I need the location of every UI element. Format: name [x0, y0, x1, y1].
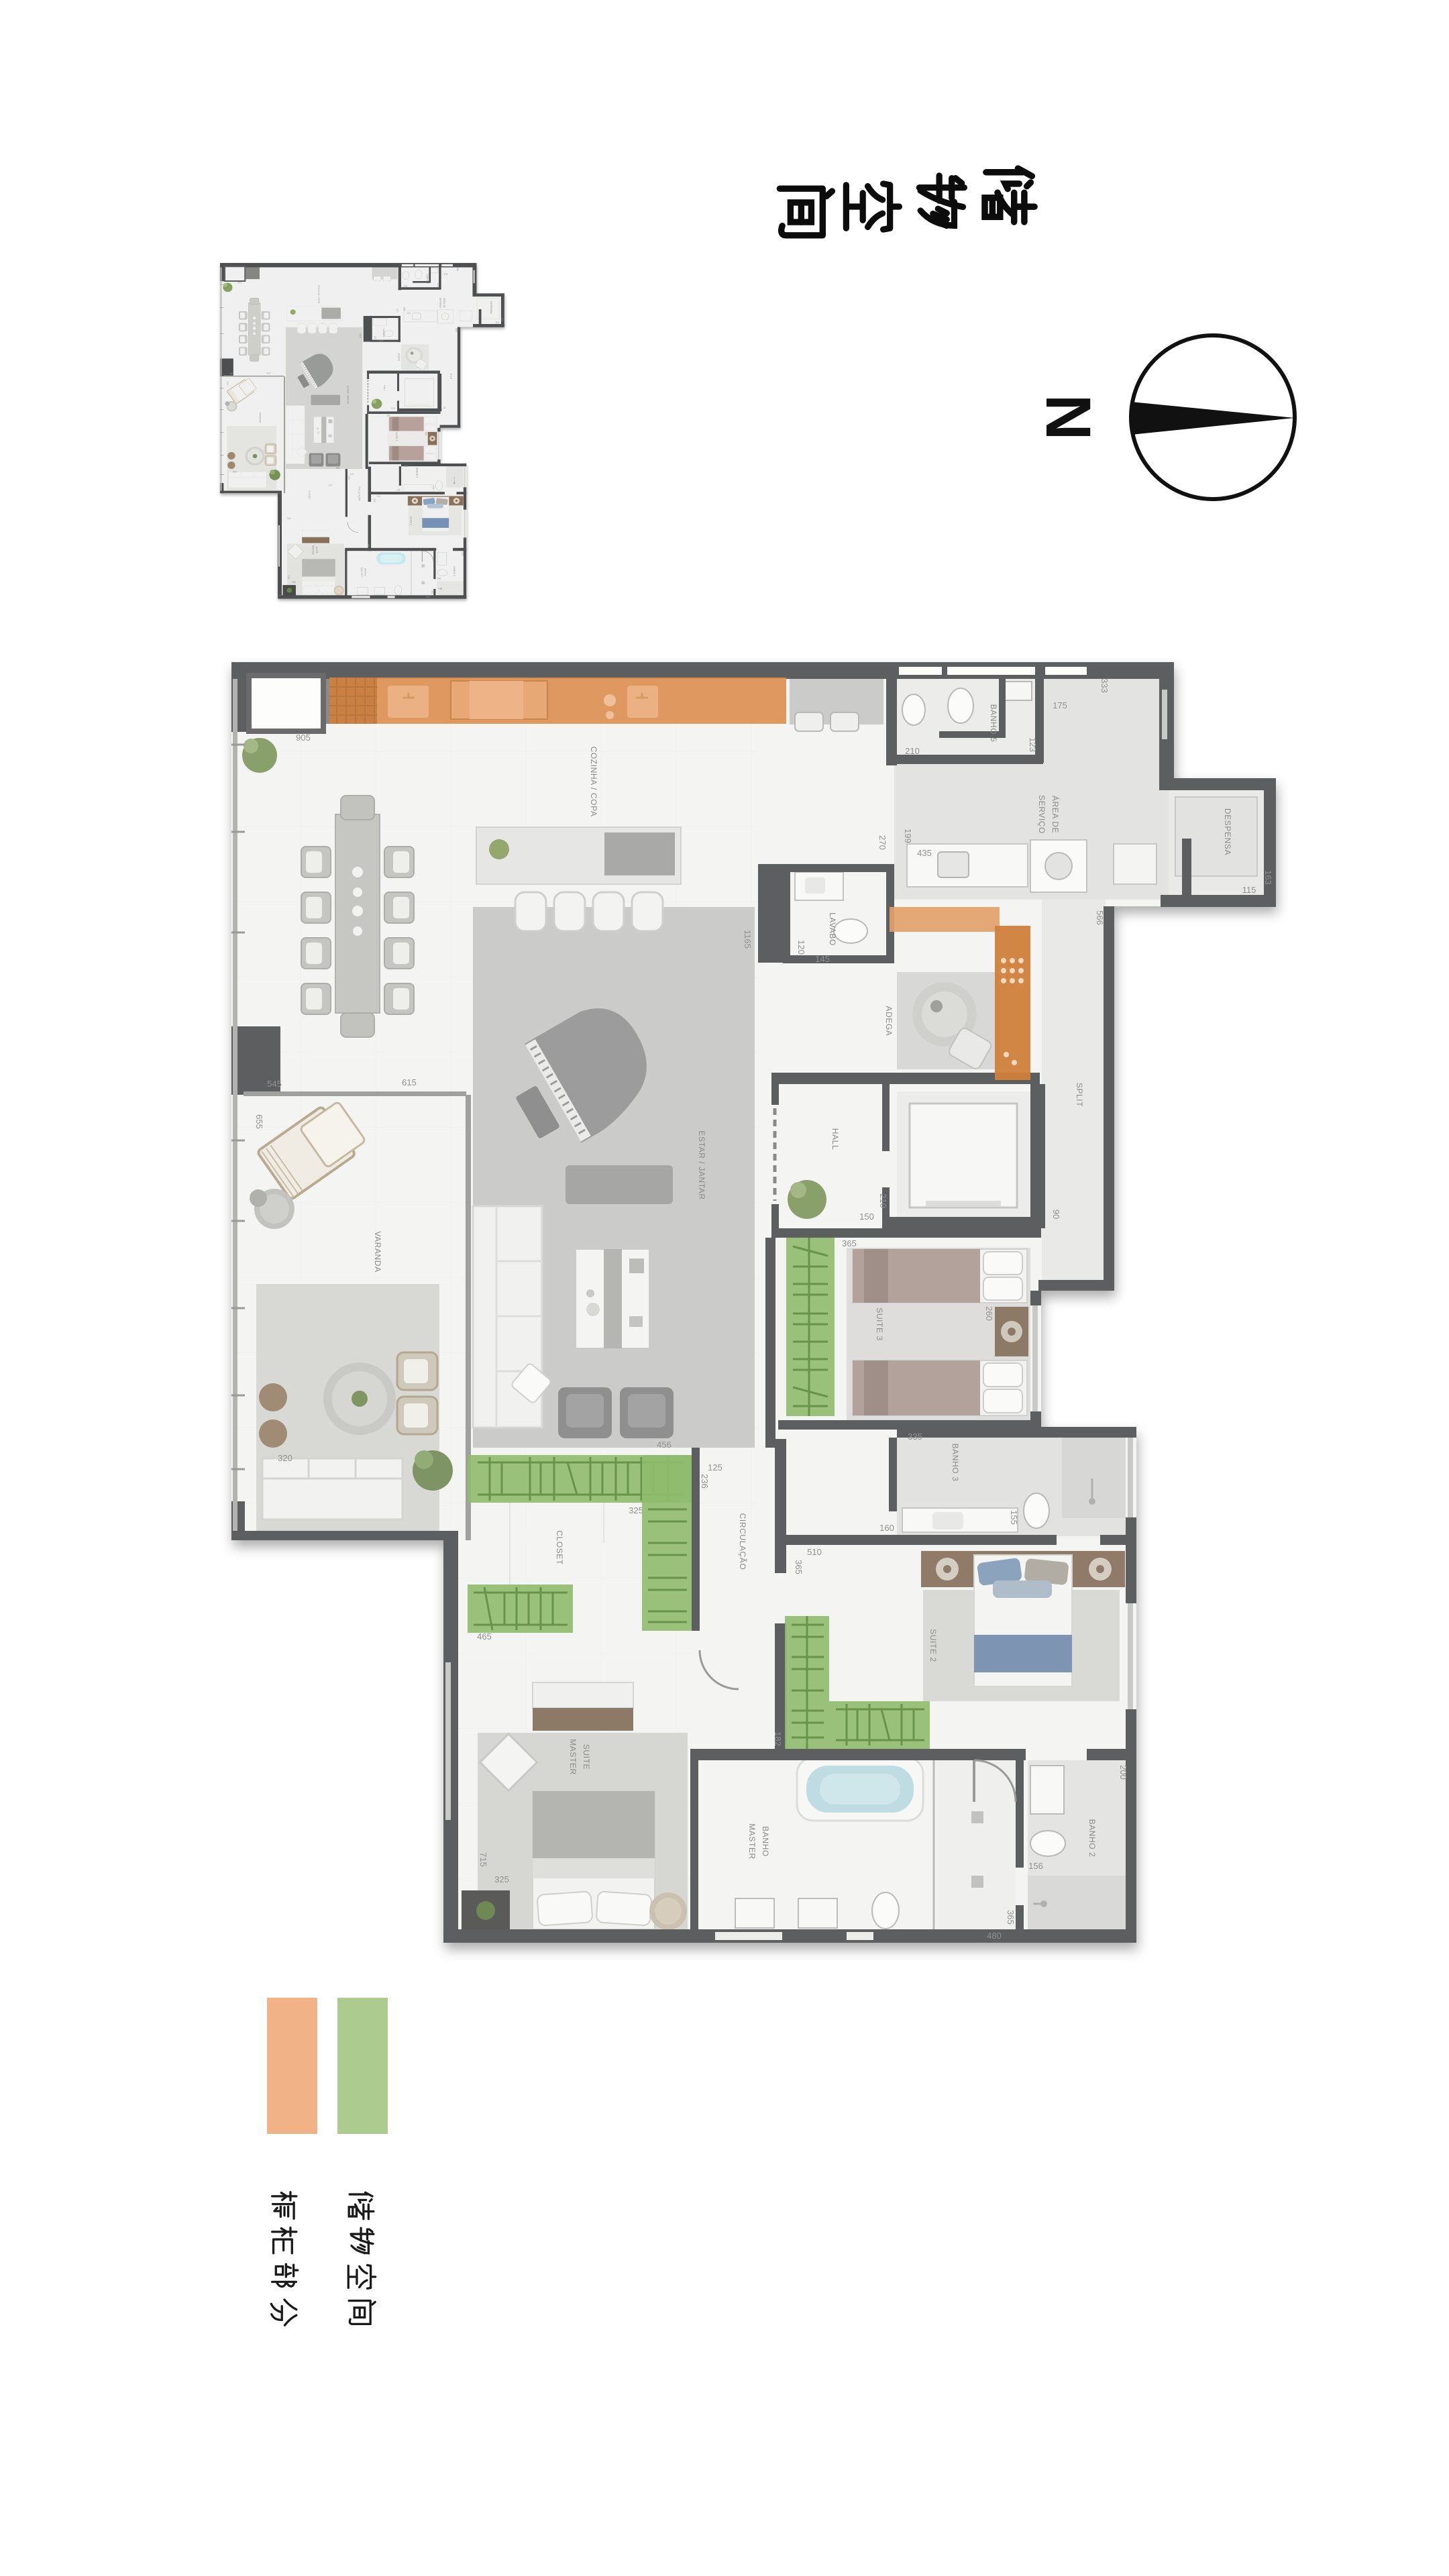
svg-text:N: N [1032, 394, 1104, 441]
